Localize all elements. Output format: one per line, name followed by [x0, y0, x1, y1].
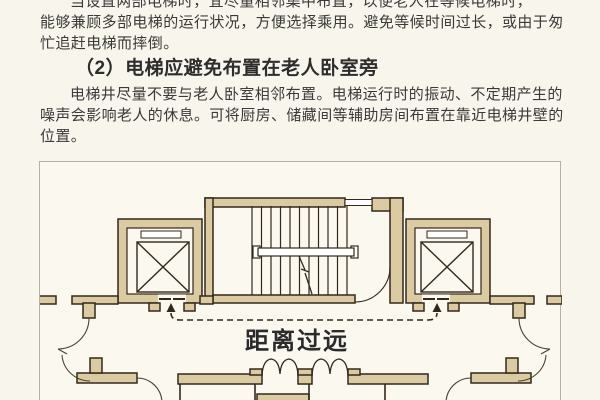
section-heading: （2）电梯应避免布置在老人卧室旁 [75, 55, 564, 82]
floor-plan-figure: 距离过远 [39, 161, 561, 400]
right-elevator-shaft [406, 219, 490, 311]
right-arrowhead [433, 303, 442, 312]
staircase [205, 198, 403, 303]
left-arrowhead [167, 303, 176, 312]
left-counterweight [141, 231, 181, 238]
distance-label: 距离过远 [245, 327, 349, 355]
left-elevator-shaft [118, 219, 202, 311]
distance-dashed-arrow [167, 303, 442, 320]
paragraph-elevator-waiting: 当设置两部电梯时，宜尽量相邻集中布置，以便老人在等候电梯时， 能够兼顾多部电梯的… [40, 0, 564, 54]
paragraph-elevator-shaft: 电梯井尽量不要与老人卧室相邻布置。电梯运行时的振动、不定期产生的 噪声会影响老人… [40, 84, 564, 147]
book-page: 当设置两部电梯时，宜尽量相邻集中布置，以便老人在等候电梯时， 能够兼顾多部电梯的… [0, 0, 600, 400]
stair-handrail [253, 246, 358, 258]
right-counterweight [427, 231, 467, 238]
stair-door-arc [355, 267, 390, 302]
floor-plan-svg: 距离过远 [40, 162, 562, 400]
text-column: 当设置两部电梯时，宜尽量相邻集中布置，以便老人在等候电梯时， 能够兼顾多部电梯的… [0, 0, 600, 147]
stair-direction-line [299, 256, 312, 294]
